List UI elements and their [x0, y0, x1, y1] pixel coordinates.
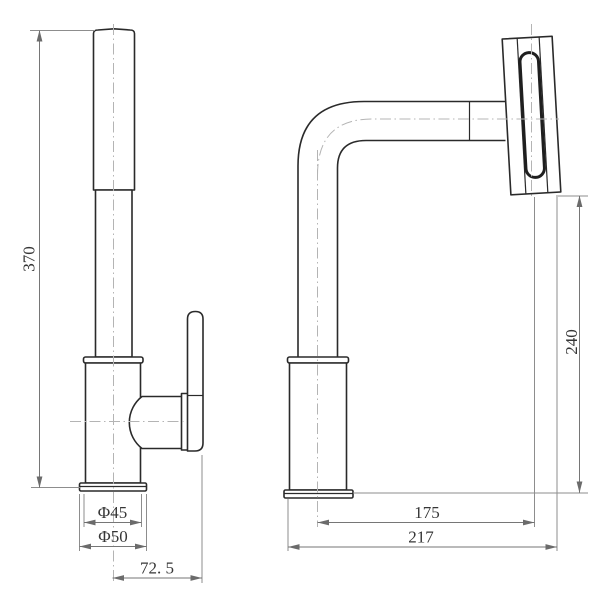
arrowhead: [523, 520, 535, 526]
handle-lever: [188, 312, 204, 452]
arrowhead: [577, 196, 583, 208]
right-view: [284, 24, 561, 527]
arrowhead: [37, 477, 43, 489]
arrowhead: [113, 575, 125, 581]
arrowhead: [84, 520, 96, 526]
faucet-technical-drawing: 370 Φ45 Φ50 72. 5 175 217: [0, 0, 611, 600]
arrowhead: [80, 544, 92, 550]
dim-spout-height-label: 240: [562, 329, 581, 355]
handle-boss: [129, 397, 184, 449]
arrowhead: [191, 575, 203, 581]
dim-handle-offset-label: 72. 5: [140, 559, 174, 578]
drawing-canvas: 370 Φ45 Φ50 72. 5 175 217: [0, 0, 611, 600]
arrowhead: [288, 544, 300, 550]
arrowhead: [135, 544, 147, 550]
arrowhead: [37, 30, 43, 42]
arrowhead: [318, 520, 330, 526]
dim-body-diameter-label: Φ45: [98, 503, 127, 522]
dim-spout-reach-label: 175: [414, 503, 440, 522]
arrowhead: [546, 544, 558, 550]
left-view: [70, 24, 203, 583]
dim-total-reach-label: 217: [408, 528, 434, 547]
arrowhead: [577, 482, 583, 494]
spout-elbow-inner: [338, 141, 506, 363]
dim-overall-height-label: 370: [20, 246, 39, 272]
dim-base-diameter-label: Φ50: [98, 527, 127, 546]
arrowhead: [130, 520, 142, 526]
